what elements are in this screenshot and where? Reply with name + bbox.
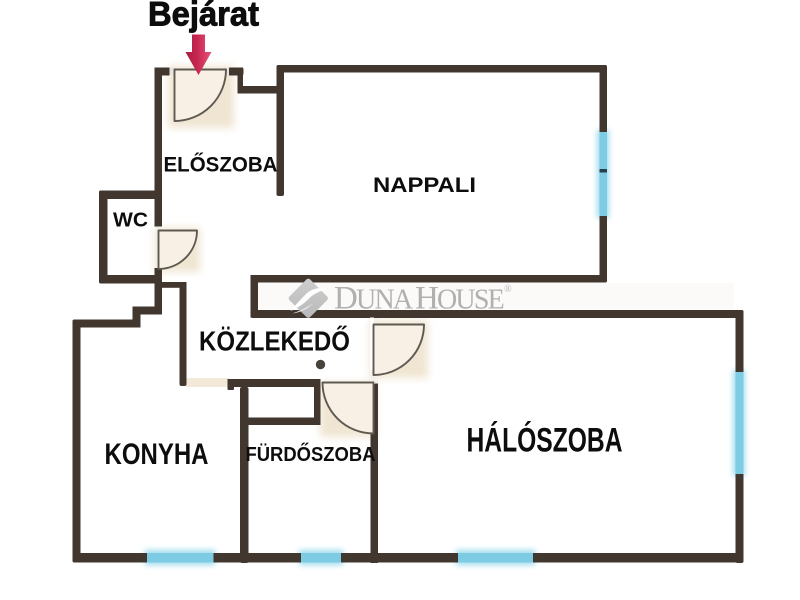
svg-text:WC: WC [113, 210, 148, 232]
svg-text:®: ® [504, 284, 512, 295]
svg-text:HÁLÓSZOBA: HÁLÓSZOBA [467, 422, 623, 460]
svg-text:ELŐSZOBA: ELŐSZOBA [164, 154, 278, 177]
svg-text:KONYHA: KONYHA [105, 438, 209, 471]
svg-text:FÜRDŐSZOBA: FÜRDŐSZOBA [246, 443, 376, 466]
svg-text:DUNA HOUSE: DUNA HOUSE [334, 281, 504, 317]
svg-text:NAPPALI: NAPPALI [373, 173, 476, 197]
svg-text:KÖZLEKEDŐ: KÖZLEKEDŐ [199, 326, 350, 357]
svg-text:Bejárat: Bejárat [148, 0, 259, 34]
